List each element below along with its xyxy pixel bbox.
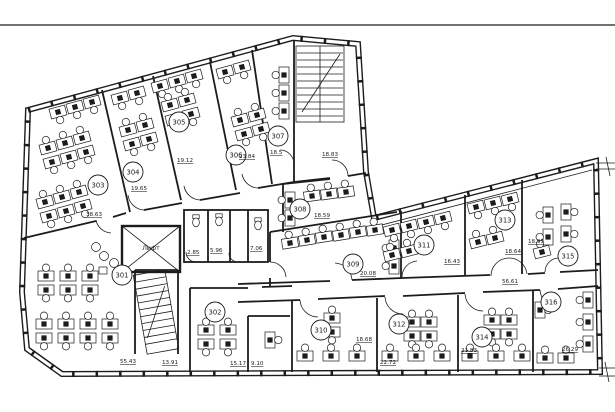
desk — [82, 264, 98, 281]
desk — [58, 312, 74, 329]
area-label-311: 16.43 — [444, 259, 460, 265]
desk — [484, 308, 500, 325]
desk — [128, 86, 148, 107]
desk — [501, 308, 517, 325]
room-label-315: 315 — [558, 246, 578, 266]
room-label-314: 314 — [472, 327, 492, 347]
desk — [272, 103, 289, 119]
area-label-310: 18.68 — [356, 337, 372, 343]
area-label-annex: 9.10 — [251, 361, 264, 367]
elevator: Лифт — [122, 226, 180, 272]
area-label-309: 20.08 — [360, 271, 376, 277]
svg-text:311: 311 — [418, 242, 431, 250]
desk — [54, 129, 74, 150]
desk — [102, 333, 118, 350]
desk — [77, 145, 97, 166]
svg-text:310: 310 — [315, 327, 328, 335]
desk — [123, 137, 143, 158]
desk — [60, 150, 80, 171]
desk — [576, 336, 593, 352]
area-label-314: 21.83 — [461, 348, 477, 354]
desk — [324, 306, 340, 323]
svg-text:301: 301 — [116, 272, 129, 280]
desk — [185, 69, 205, 90]
desk — [348, 219, 366, 238]
desks-309 — [280, 217, 399, 274]
room-label-313: 313 — [495, 210, 515, 230]
desk — [421, 310, 437, 327]
room-label-312: 312 — [389, 314, 409, 334]
desks-302 — [198, 318, 282, 356]
desk — [111, 91, 131, 112]
desk — [58, 333, 74, 350]
desks-307 — [272, 67, 289, 119]
desks-311 — [381, 211, 453, 262]
desk — [134, 111, 154, 132]
svg-text:315: 315 — [562, 253, 575, 261]
area-label-307: 18.5 — [270, 150, 283, 156]
desk — [272, 85, 289, 101]
desk — [220, 318, 236, 335]
area-label-313: 18.64 — [505, 249, 521, 255]
area-label-316: 26.29 — [562, 347, 578, 353]
desk — [297, 227, 315, 246]
svg-text:316: 316 — [545, 299, 558, 307]
floor-plan-drawing: Лифт — [0, 0, 615, 412]
desk — [57, 204, 77, 225]
desk — [467, 228, 487, 248]
desk — [382, 344, 398, 361]
desks-310 — [297, 306, 365, 361]
svg-text:313: 313 — [499, 217, 512, 225]
desk — [229, 106, 249, 127]
room-label-304: 304 — [123, 162, 143, 182]
desk — [66, 100, 86, 121]
desk — [83, 95, 103, 116]
desk — [272, 67, 289, 83]
area-label-stair: 13.91 — [162, 360, 178, 366]
desk — [220, 339, 236, 356]
desk — [576, 292, 593, 308]
area-label-312: 22.72 — [380, 360, 396, 366]
room-label-316: 316 — [541, 292, 561, 312]
svg-text:303: 303 — [92, 182, 105, 190]
svg-text:304: 304 — [127, 169, 140, 177]
desk — [536, 207, 553, 223]
room-label-307: 307 — [268, 126, 288, 146]
toilet-icon — [193, 215, 200, 227]
desk — [38, 285, 54, 302]
desks-303 — [34, 95, 103, 230]
desk — [417, 215, 437, 235]
desk — [434, 344, 450, 361]
toilet-icon — [255, 218, 262, 230]
desk — [80, 312, 96, 329]
desk — [40, 209, 60, 230]
desk — [60, 285, 76, 302]
desk — [400, 219, 420, 239]
area-label-315: 18.93 — [528, 239, 544, 245]
room-label-308: 308 — [290, 199, 310, 219]
desk — [265, 332, 282, 348]
desk — [51, 183, 71, 204]
area-label-corridor: 56.61 — [502, 279, 518, 285]
svg-text:305: 305 — [173, 119, 186, 127]
desk — [434, 211, 454, 231]
elevator-label: Лифт — [142, 245, 160, 252]
desk — [349, 344, 365, 361]
desk — [36, 333, 52, 350]
floor-plan-page: Лифт — [0, 0, 615, 412]
desk — [235, 127, 255, 148]
area-label-303: 38.63 — [86, 212, 102, 218]
svg-text:309: 309 — [347, 261, 360, 269]
room-label-301: 301 — [112, 265, 132, 285]
desk — [365, 217, 383, 236]
desk — [233, 60, 253, 81]
desk — [514, 344, 530, 361]
room-label-302: 302 — [205, 302, 225, 322]
staircase-upper — [296, 46, 344, 122]
area-label-302: 15.17 — [230, 361, 246, 367]
area-label-304: 19.65 — [131, 186, 147, 192]
area-label-301: 55.43 — [120, 359, 136, 365]
staircase-lower — [133, 270, 178, 354]
desk — [140, 132, 160, 153]
desk — [198, 339, 214, 356]
desk — [36, 312, 52, 329]
desks-301 — [36, 264, 118, 350]
desk — [280, 230, 298, 249]
desk — [576, 314, 593, 330]
desk — [49, 105, 69, 126]
svg-text:312: 312 — [393, 321, 406, 329]
desk — [336, 179, 354, 198]
desk — [383, 223, 403, 243]
desk — [246, 101, 266, 122]
desk — [297, 344, 313, 361]
area-label-306: 23.84 — [239, 154, 255, 160]
desk — [488, 344, 504, 361]
desk — [37, 134, 57, 155]
desk — [82, 285, 98, 302]
desk — [102, 312, 118, 329]
room-label-310: 310 — [311, 320, 331, 340]
svg-text:308: 308 — [294, 206, 307, 214]
desks-304 — [111, 86, 160, 158]
desk — [561, 204, 578, 220]
desk — [68, 178, 88, 199]
desk — [501, 329, 517, 346]
desk — [38, 264, 54, 281]
room-label-305: 305 — [169, 112, 189, 132]
area-label-305: 19.12 — [177, 158, 193, 164]
desk — [43, 155, 63, 176]
desk — [421, 331, 437, 348]
area-label-wc-large: 7.06 — [250, 246, 263, 252]
desk — [117, 116, 137, 137]
desk — [501, 192, 521, 212]
desk — [71, 124, 91, 145]
desk — [216, 65, 236, 86]
desk — [537, 346, 553, 363]
desk — [80, 333, 96, 350]
area-label-wc-mid: 5.96 — [210, 248, 223, 254]
desk — [323, 344, 339, 361]
area-label-wc-small: 2.85 — [187, 250, 200, 256]
room-label-303: 303 — [88, 175, 108, 195]
desk — [331, 222, 349, 241]
svg-text:302: 302 — [209, 309, 222, 317]
desk — [314, 224, 332, 243]
desk — [467, 200, 487, 220]
toilet-icon — [216, 214, 223, 226]
desk — [302, 183, 320, 202]
window-sill-line — [378, 170, 592, 226]
svg-text:307: 307 — [272, 133, 285, 141]
desk — [60, 264, 76, 281]
desk — [34, 188, 54, 209]
area-label-upper-hall: 18.83 — [322, 152, 338, 158]
room-label-311: 311 — [414, 235, 434, 255]
desk — [319, 181, 337, 200]
area-label-308: 18.59 — [314, 213, 330, 219]
svg-text:314: 314 — [476, 334, 489, 342]
desk — [561, 226, 578, 242]
